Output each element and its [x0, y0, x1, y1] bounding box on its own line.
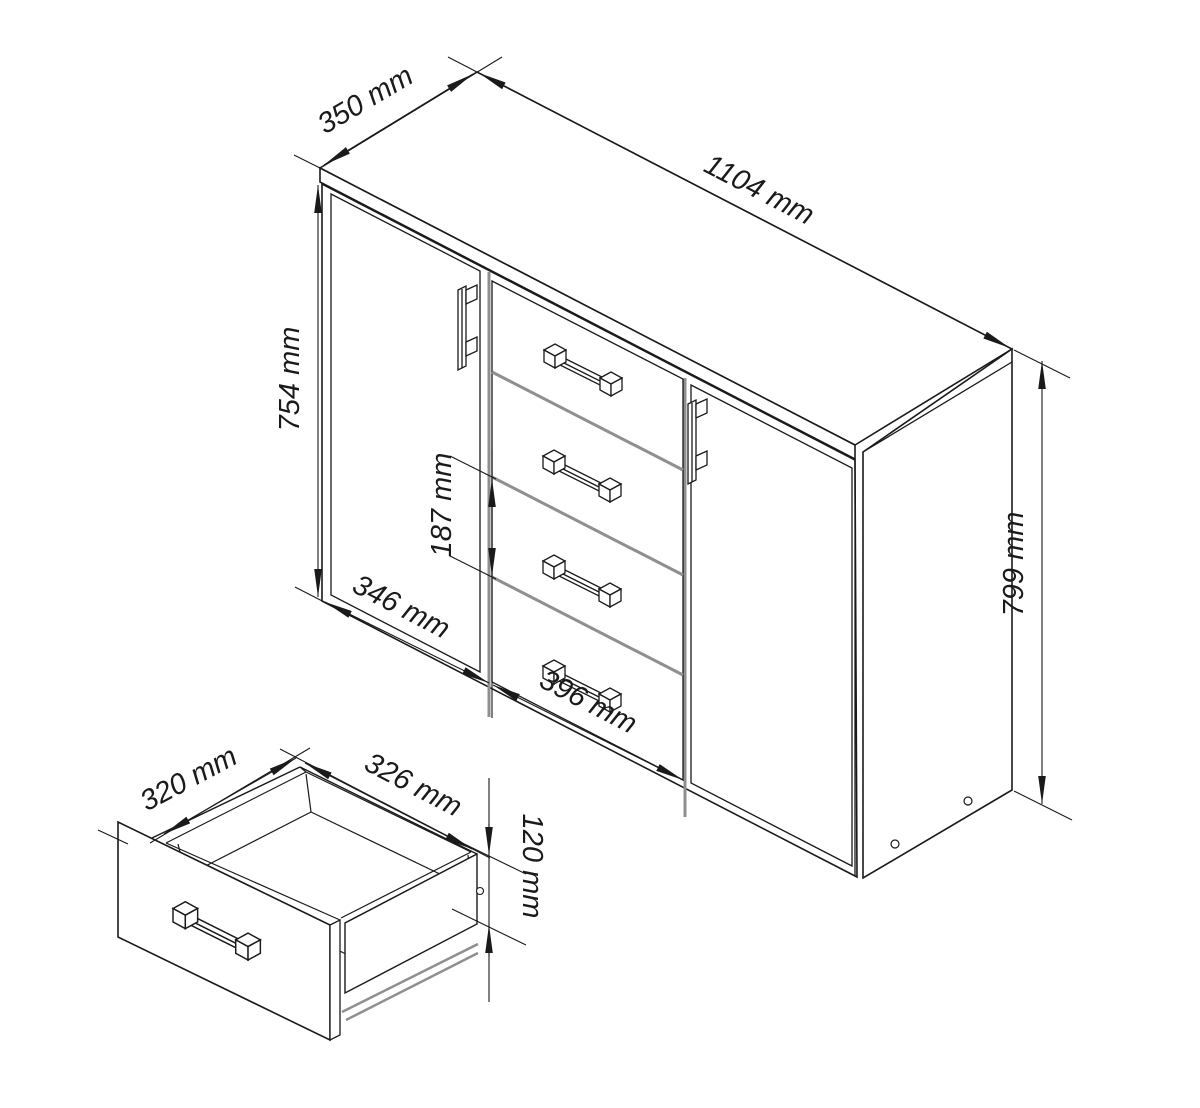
interior-corner	[306, 774, 311, 812]
cabinet-side-panel	[863, 349, 1012, 878]
dimension-door-height: 754 mm	[274, 185, 318, 597]
cabinet-view	[320, 72, 1012, 878]
extension-line	[1014, 791, 1072, 820]
dimension-label: 320 mm	[135, 740, 243, 817]
dimension-label: 326 mm	[359, 747, 467, 824]
drawing-page: 350 mm 1104 mm 754 mm 187 mm 346 mm	[0, 0, 1200, 1108]
right-door	[691, 385, 852, 866]
cam-hole	[477, 888, 484, 895]
dimension-label: 799 mm	[998, 512, 1030, 617]
cam-hole	[964, 797, 972, 805]
dimension-label: 754 mm	[274, 327, 306, 432]
extension-line	[448, 57, 477, 72]
technical-drawing: 350 mm 1104 mm 754 mm 187 mm 346 mm	[0, 0, 1200, 1108]
dimension-label: 120 mm	[516, 814, 548, 919]
drawer-front-panel-thickness	[330, 920, 340, 1040]
drawer-side-wall	[345, 854, 477, 993]
extension-line	[294, 155, 322, 169]
dimension-label: 187 mm	[426, 453, 458, 558]
cam-hole	[891, 840, 899, 848]
